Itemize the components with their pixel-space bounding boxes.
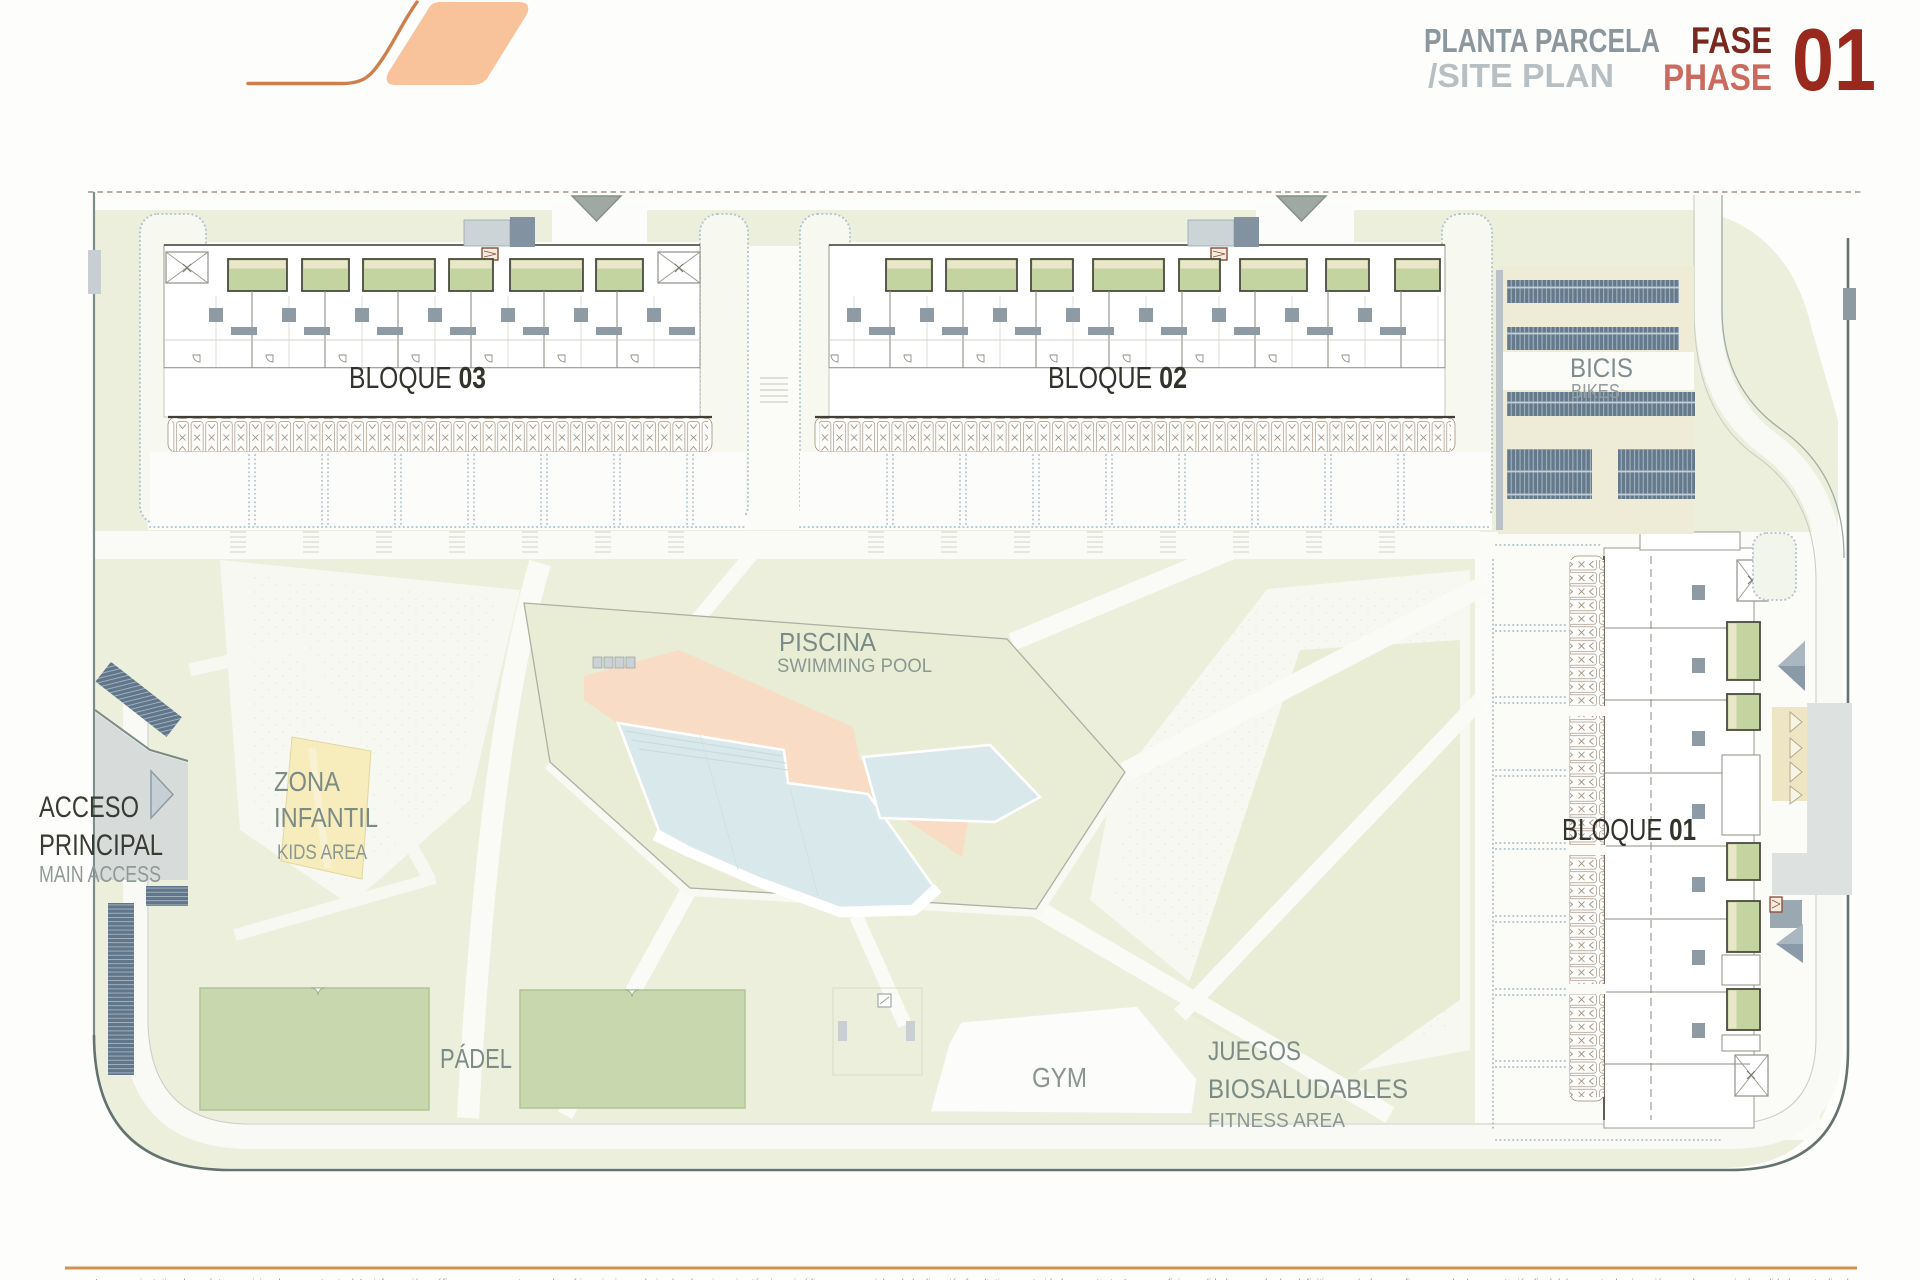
svg-text:FITNESS AREA: FITNESS AREA [1208, 1110, 1346, 1132]
svg-text:BLOQUE 02: BLOQUE 02 [1048, 360, 1187, 395]
svg-text:BIKES: BIKES [1571, 381, 1620, 403]
svg-text:PISCINA: PISCINA [779, 627, 877, 657]
svg-text:GYM: GYM [1032, 1062, 1087, 1093]
svg-text:SWIMMING POOL: SWIMMING POOL [777, 656, 932, 677]
svg-text:KIDS AREA: KIDS AREA [277, 841, 367, 864]
svg-text:MAIN ACCESS: MAIN ACCESS [39, 861, 161, 887]
svg-text:PLANTA PARCELA: PLANTA PARCELA [1424, 22, 1660, 59]
svg-text:FASE: FASE [1691, 20, 1772, 61]
svg-text:PÁDEL: PÁDEL [440, 1043, 512, 1074]
svg-text:01: 01 [1792, 10, 1876, 109]
svg-text:ZONA: ZONA [274, 766, 340, 797]
svg-text:BIOSALUDABLES: BIOSALUDABLES [1208, 1074, 1408, 1104]
svg-text:INFANTIL: INFANTIL [274, 802, 378, 833]
svg-text:PHASE: PHASE [1663, 57, 1772, 98]
svg-text:JUEGOS: JUEGOS [1208, 1036, 1301, 1066]
svg-text:BLOQUE 01: BLOQUE 01 [1562, 812, 1696, 847]
svg-text:/SITE PLAN: /SITE PLAN [1428, 57, 1614, 94]
svg-text:BLOQUE 03: BLOQUE 03 [349, 360, 486, 395]
svg-text:BICIS: BICIS [1570, 353, 1633, 383]
svg-text:ACCESO: ACCESO [39, 791, 139, 824]
svg-text:PRINCIPAL: PRINCIPAL [39, 829, 163, 862]
